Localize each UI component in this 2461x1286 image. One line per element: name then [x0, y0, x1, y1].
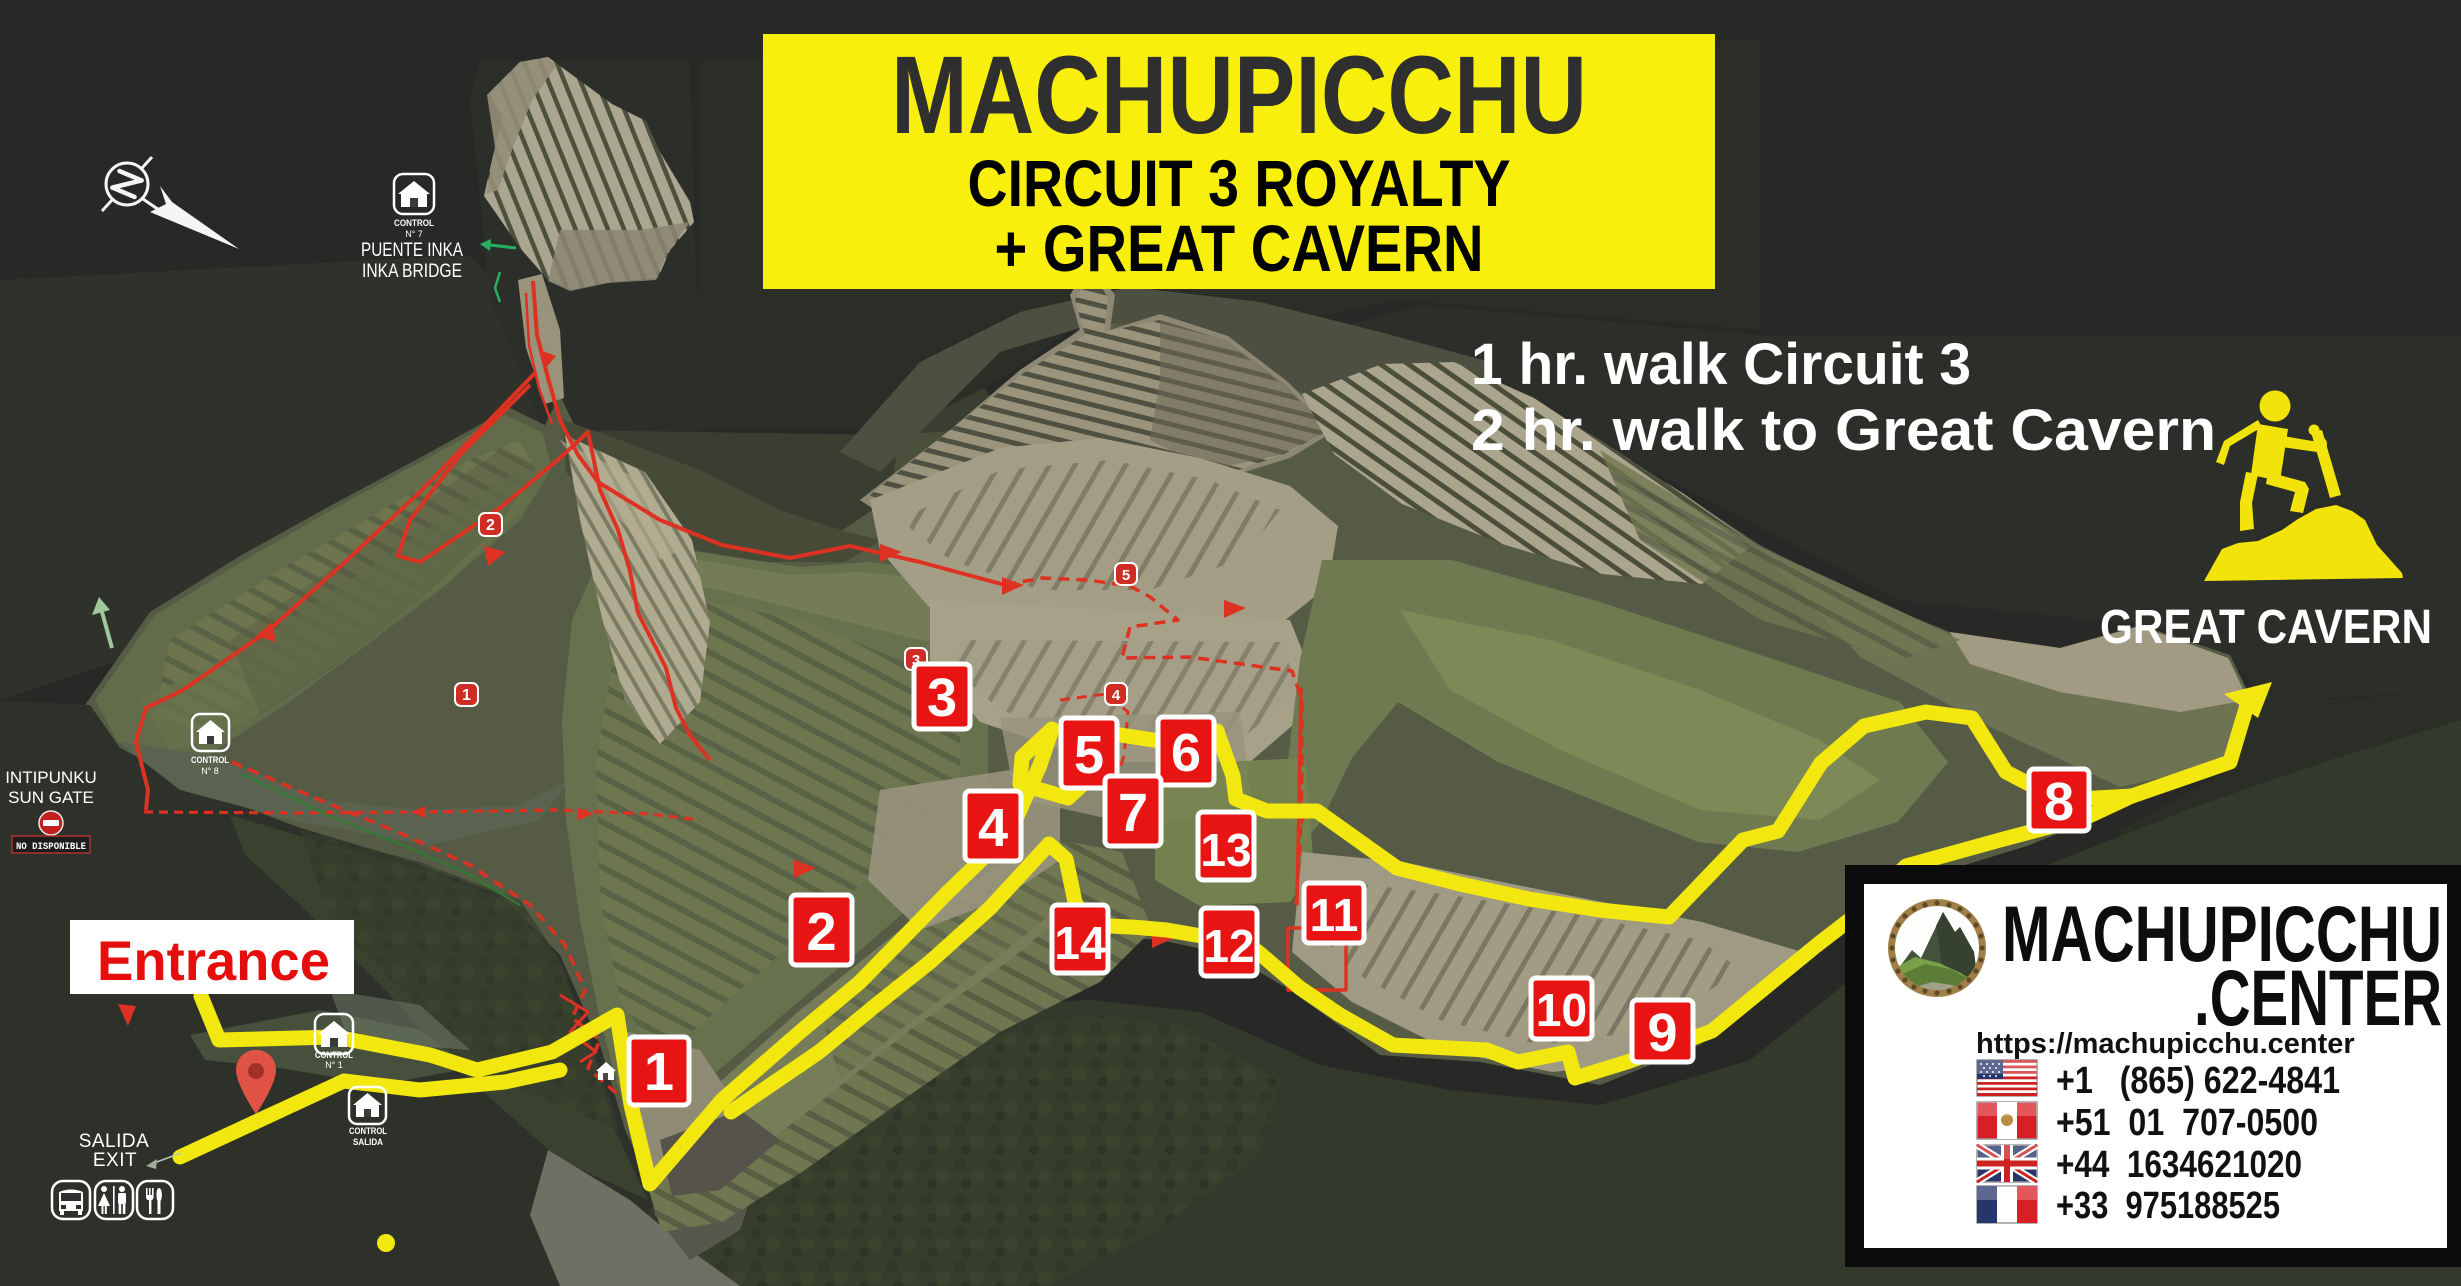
svg-text:INKA BRIDGE: INKA BRIDGE — [362, 261, 462, 282]
svg-text:+44 1634621020: +44 1634621020 — [2056, 1144, 2302, 1186]
svg-text:SUN GATE: SUN GATE — [8, 788, 94, 807]
svg-text:3: 3 — [927, 668, 957, 728]
svg-text:14: 14 — [1054, 917, 1106, 969]
svg-text:N° 7: N° 7 — [405, 229, 423, 239]
svg-text:N° 1: N° 1 — [325, 1060, 343, 1070]
svg-text:SALIDA: SALIDA — [79, 1131, 150, 1152]
svg-text:12: 12 — [1203, 920, 1254, 972]
svg-text:4: 4 — [1112, 687, 1121, 704]
svg-text:PUENTE INKA: PUENTE INKA — [361, 240, 463, 261]
svg-text:+33 975188525: +33 975188525 — [2056, 1185, 2280, 1227]
svg-text:CIRCUIT 3 ROYALTY: CIRCUIT 3 ROYALTY — [968, 146, 1511, 220]
svg-text:+51 01 707-0500: +51 01 707-0500 — [2056, 1102, 2318, 1144]
svg-text:2: 2 — [806, 902, 836, 962]
svg-text:+1 (865) 622-4841: +1 (865) 622-4841 — [2056, 1060, 2340, 1102]
svg-text:4: 4 — [978, 798, 1008, 858]
svg-text:+ GREAT CAVERN: + GREAT CAVERN — [995, 211, 1484, 285]
svg-text:CONTROL: CONTROL — [191, 755, 229, 765]
svg-text:11: 11 — [1310, 889, 1359, 941]
svg-text:2: 2 — [486, 517, 495, 534]
svg-text:CONTROL: CONTROL — [349, 1126, 387, 1136]
svg-text:CONTROL: CONTROL — [394, 218, 434, 228]
svg-text:CONTROL: CONTROL — [315, 1050, 353, 1060]
svg-text:7: 7 — [1118, 783, 1148, 843]
svg-text:6: 6 — [1171, 723, 1201, 783]
svg-text:5: 5 — [1074, 725, 1104, 785]
svg-text:EXIT: EXIT — [93, 1150, 137, 1171]
svg-text:13: 13 — [1200, 824, 1251, 876]
svg-text:9: 9 — [1647, 1003, 1677, 1063]
svg-text:5: 5 — [1122, 567, 1130, 584]
svg-text:2 hr. walk to Great Cavern: 2 hr. walk to Great Cavern — [1471, 398, 2216, 463]
svg-text:10: 10 — [1536, 984, 1587, 1036]
svg-text:1 hr. walk Circuit 3: 1 hr. walk Circuit 3 — [1471, 332, 1971, 397]
svg-text:Entrance: Entrance — [97, 929, 330, 992]
svg-text:MACHUPICCHU: MACHUPICCHU — [891, 34, 1587, 157]
svg-text:1: 1 — [462, 687, 471, 704]
svg-text:1: 1 — [644, 1042, 674, 1102]
svg-text:GREAT CAVERN: GREAT CAVERN — [2100, 601, 2432, 654]
svg-text:https://machupicchu.center: https://machupicchu.center — [1976, 1028, 2355, 1060]
svg-text:INTIPUNKU: INTIPUNKU — [5, 768, 97, 787]
svg-text:N° 8: N° 8 — [201, 766, 219, 776]
svg-text:NO DISPONIBLE: NO DISPONIBLE — [16, 841, 86, 853]
svg-text:SALIDA: SALIDA — [353, 1137, 383, 1147]
svg-text:8: 8 — [2044, 772, 2074, 832]
